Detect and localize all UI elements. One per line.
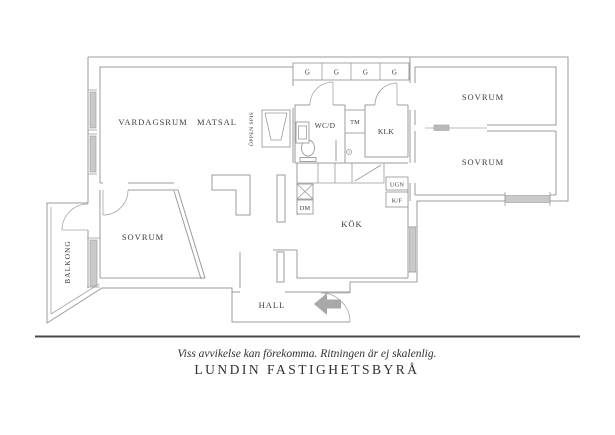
kitchen-window <box>408 227 417 272</box>
kitchen-counter <box>297 163 384 183</box>
floor-drain <box>347 150 352 155</box>
fridge-freezer: K/F <box>386 192 408 207</box>
bathroom-door-arc <box>310 82 333 105</box>
bedroom-mid-right-label: SOVRUM <box>462 157 504 167</box>
sliding-door-handle <box>434 125 449 131</box>
wardrobe-label-1: G <box>305 69 310 77</box>
washing-machine: TM <box>345 110 365 133</box>
disclaimer-text: Viss avvikelse kan förekomma. Ritningen … <box>177 348 436 360</box>
kitchen-door-swing <box>355 165 381 181</box>
dining-room-label: MATSAL <box>197 117 237 127</box>
kitchen-label: KÖK <box>341 219 362 229</box>
interior-wall-stubs <box>212 175 350 292</box>
bedroom-bottom-left-door-arc <box>103 190 128 215</box>
closet-room-door-arc <box>375 83 397 105</box>
balcony-window <box>90 240 97 286</box>
balcony <box>51 204 100 314</box>
fireplace <box>262 110 290 147</box>
bathroom-label: WC/D <box>315 121 336 130</box>
bedroom-top-right-label: SOVRUM <box>462 92 504 102</box>
wardrobe-row: G G G G <box>293 63 409 80</box>
living-room-windows <box>88 90 97 174</box>
washing-machine-label: TM <box>350 119 360 126</box>
closet-room-label: KLK <box>378 127 395 136</box>
kitchen-sink <box>297 184 313 199</box>
wardrobe-label-3: G <box>363 69 368 77</box>
living-room-walls <box>100 67 293 279</box>
hall-label: HALL <box>259 300 286 310</box>
washbasin <box>296 122 309 143</box>
balcony-label: BALKONG <box>63 240 72 284</box>
fireplace-label: ÖPPEN SPIS <box>248 112 255 146</box>
oven: UGN <box>386 177 408 190</box>
wardrobe-label-2: G <box>334 69 339 77</box>
bedroom-mid-right-walls <box>415 192 556 206</box>
closet-room-walls <box>365 83 408 157</box>
dishwasher-label: DM <box>300 205 311 212</box>
hall-entrance <box>314 293 350 322</box>
balcony-door-arc <box>62 204 88 230</box>
entry-arrow-icon <box>314 293 341 315</box>
living-room-label: VARDAGSRUM <box>118 117 187 127</box>
floor-plan-page: DM UGN K/F TM G G <box>0 0 615 435</box>
brand-name: LUNDIN FASTIGHETSBYRÅ <box>194 362 419 377</box>
oven-label: UGN <box>390 182 404 189</box>
bedroom-bottom-left-label: SOVRUM <box>122 232 164 242</box>
dishwasher: DM <box>297 200 313 214</box>
bedroom-top-right-walls <box>415 67 556 195</box>
right-block-walls <box>410 57 415 201</box>
bedroom-mid-right-window <box>505 196 550 203</box>
wardrobe-label-4: G <box>392 69 397 77</box>
fridge-freezer-label: K/F <box>392 198 403 205</box>
floor-plan-canvas: DM UGN K/F TM G G <box>0 0 615 435</box>
